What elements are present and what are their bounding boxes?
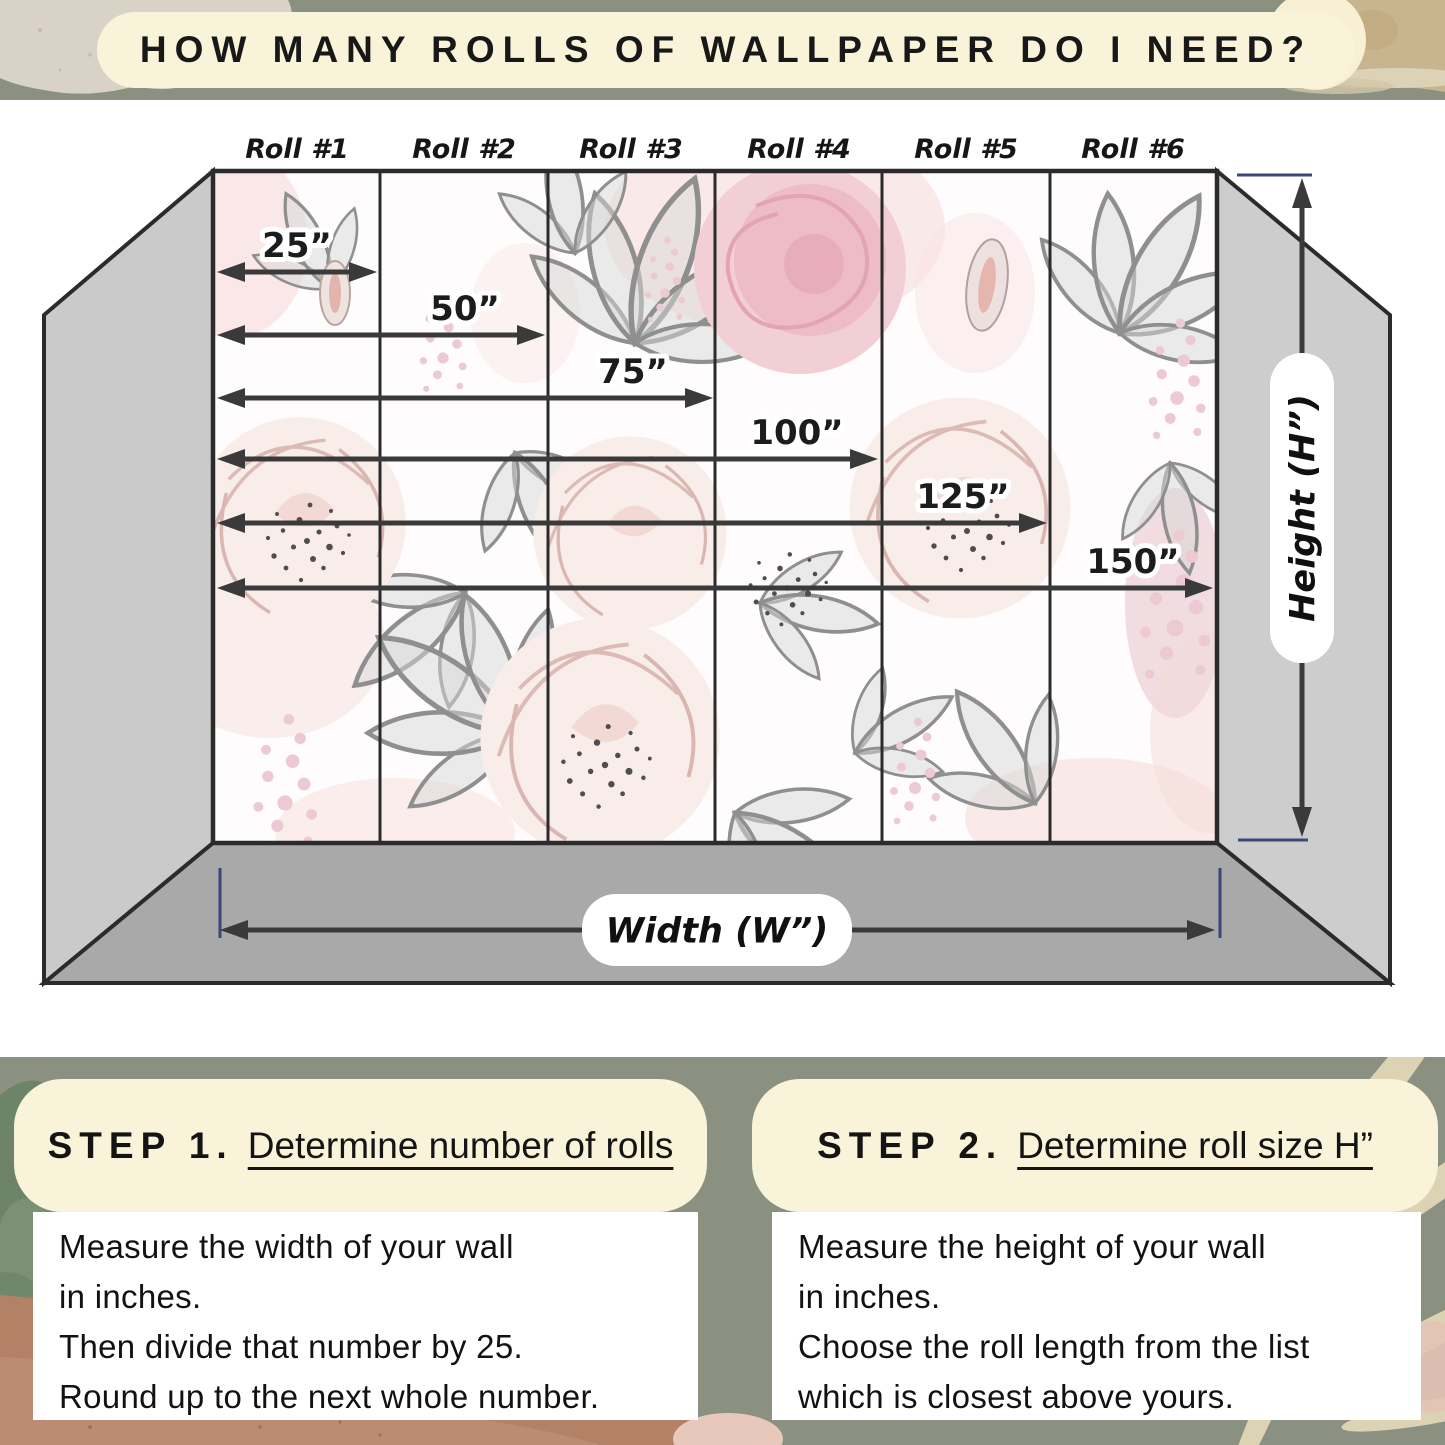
- step1-instructions: Measure the width of your wall in inches…: [33, 1212, 698, 1420]
- left-side-wall: [44, 171, 213, 983]
- roll-labels: Roll #1 Roll #2 Roll #3 Roll #4 Roll #5 …: [245, 134, 1184, 165]
- roll-label-2: Roll #2: [412, 134, 515, 165]
- measure-label-150: 150”: [1086, 542, 1179, 582]
- step2-line-4: which is closest above yours.: [798, 1372, 1421, 1422]
- roll-label-4: Roll #4: [747, 134, 850, 165]
- roll-label-6: Roll #6: [1081, 134, 1184, 165]
- height-label: Height (H”): [1283, 394, 1323, 622]
- width-label: Width (W”): [606, 911, 829, 951]
- measure-label-75: 75”: [598, 352, 668, 392]
- steps-section: STEP 1. Determine number of rolls Measur…: [0, 1057, 1445, 1445]
- step1-heading: Determine number of rolls: [248, 1125, 674, 1167]
- step1-line-4: Round up to the next whole number.: [59, 1372, 698, 1422]
- step2-name: STEP 2.: [817, 1125, 1003, 1167]
- roll-label-3: Roll #3: [579, 134, 682, 165]
- step1-line-3: Then divide that number by 25.: [59, 1322, 698, 1372]
- wallpaper-infographic: HOW MANY ROLLS OF WALLPAPER DO I NEED?: [0, 0, 1445, 1445]
- measure-label-50: 50”: [430, 289, 500, 329]
- step2-line-2: in inches.: [798, 1272, 1421, 1322]
- roll-label-1: Roll #1: [245, 134, 348, 165]
- room-diagram: Roll #1 Roll #2 Roll #3 Roll #4 Roll #5 …: [0, 100, 1445, 1057]
- step2-line-3: Choose the roll length from the list: [798, 1322, 1421, 1372]
- step1-header: STEP 1. Determine number of rolls: [14, 1079, 707, 1212]
- step2-heading: Determine roll size H”: [1017, 1125, 1373, 1167]
- title-pill: HOW MANY ROLLS OF WALLPAPER DO I NEED?: [97, 12, 1355, 88]
- page-title: HOW MANY ROLLS OF WALLPAPER DO I NEED?: [140, 29, 1312, 71]
- step1-line-2: in inches.: [59, 1272, 698, 1322]
- measure-label-25: 25”: [262, 226, 332, 266]
- measure-label-100: 100”: [750, 413, 843, 453]
- header-band: HOW MANY ROLLS OF WALLPAPER DO I NEED?: [0, 0, 1445, 100]
- room-illustration: Roll #1 Roll #2 Roll #3 Roll #4 Roll #5 …: [0, 100, 1445, 1057]
- measure-label-125: 125”: [916, 477, 1009, 517]
- step2-header: STEP 2. Determine roll size H”: [752, 1079, 1438, 1212]
- step1-line-1: Measure the width of your wall: [59, 1222, 698, 1272]
- roll-label-5: Roll #5: [914, 134, 1017, 165]
- step2-instructions: Measure the height of your wall in inche…: [772, 1212, 1421, 1420]
- step1-name: STEP 1.: [48, 1125, 234, 1167]
- step2-line-1: Measure the height of your wall: [798, 1222, 1421, 1272]
